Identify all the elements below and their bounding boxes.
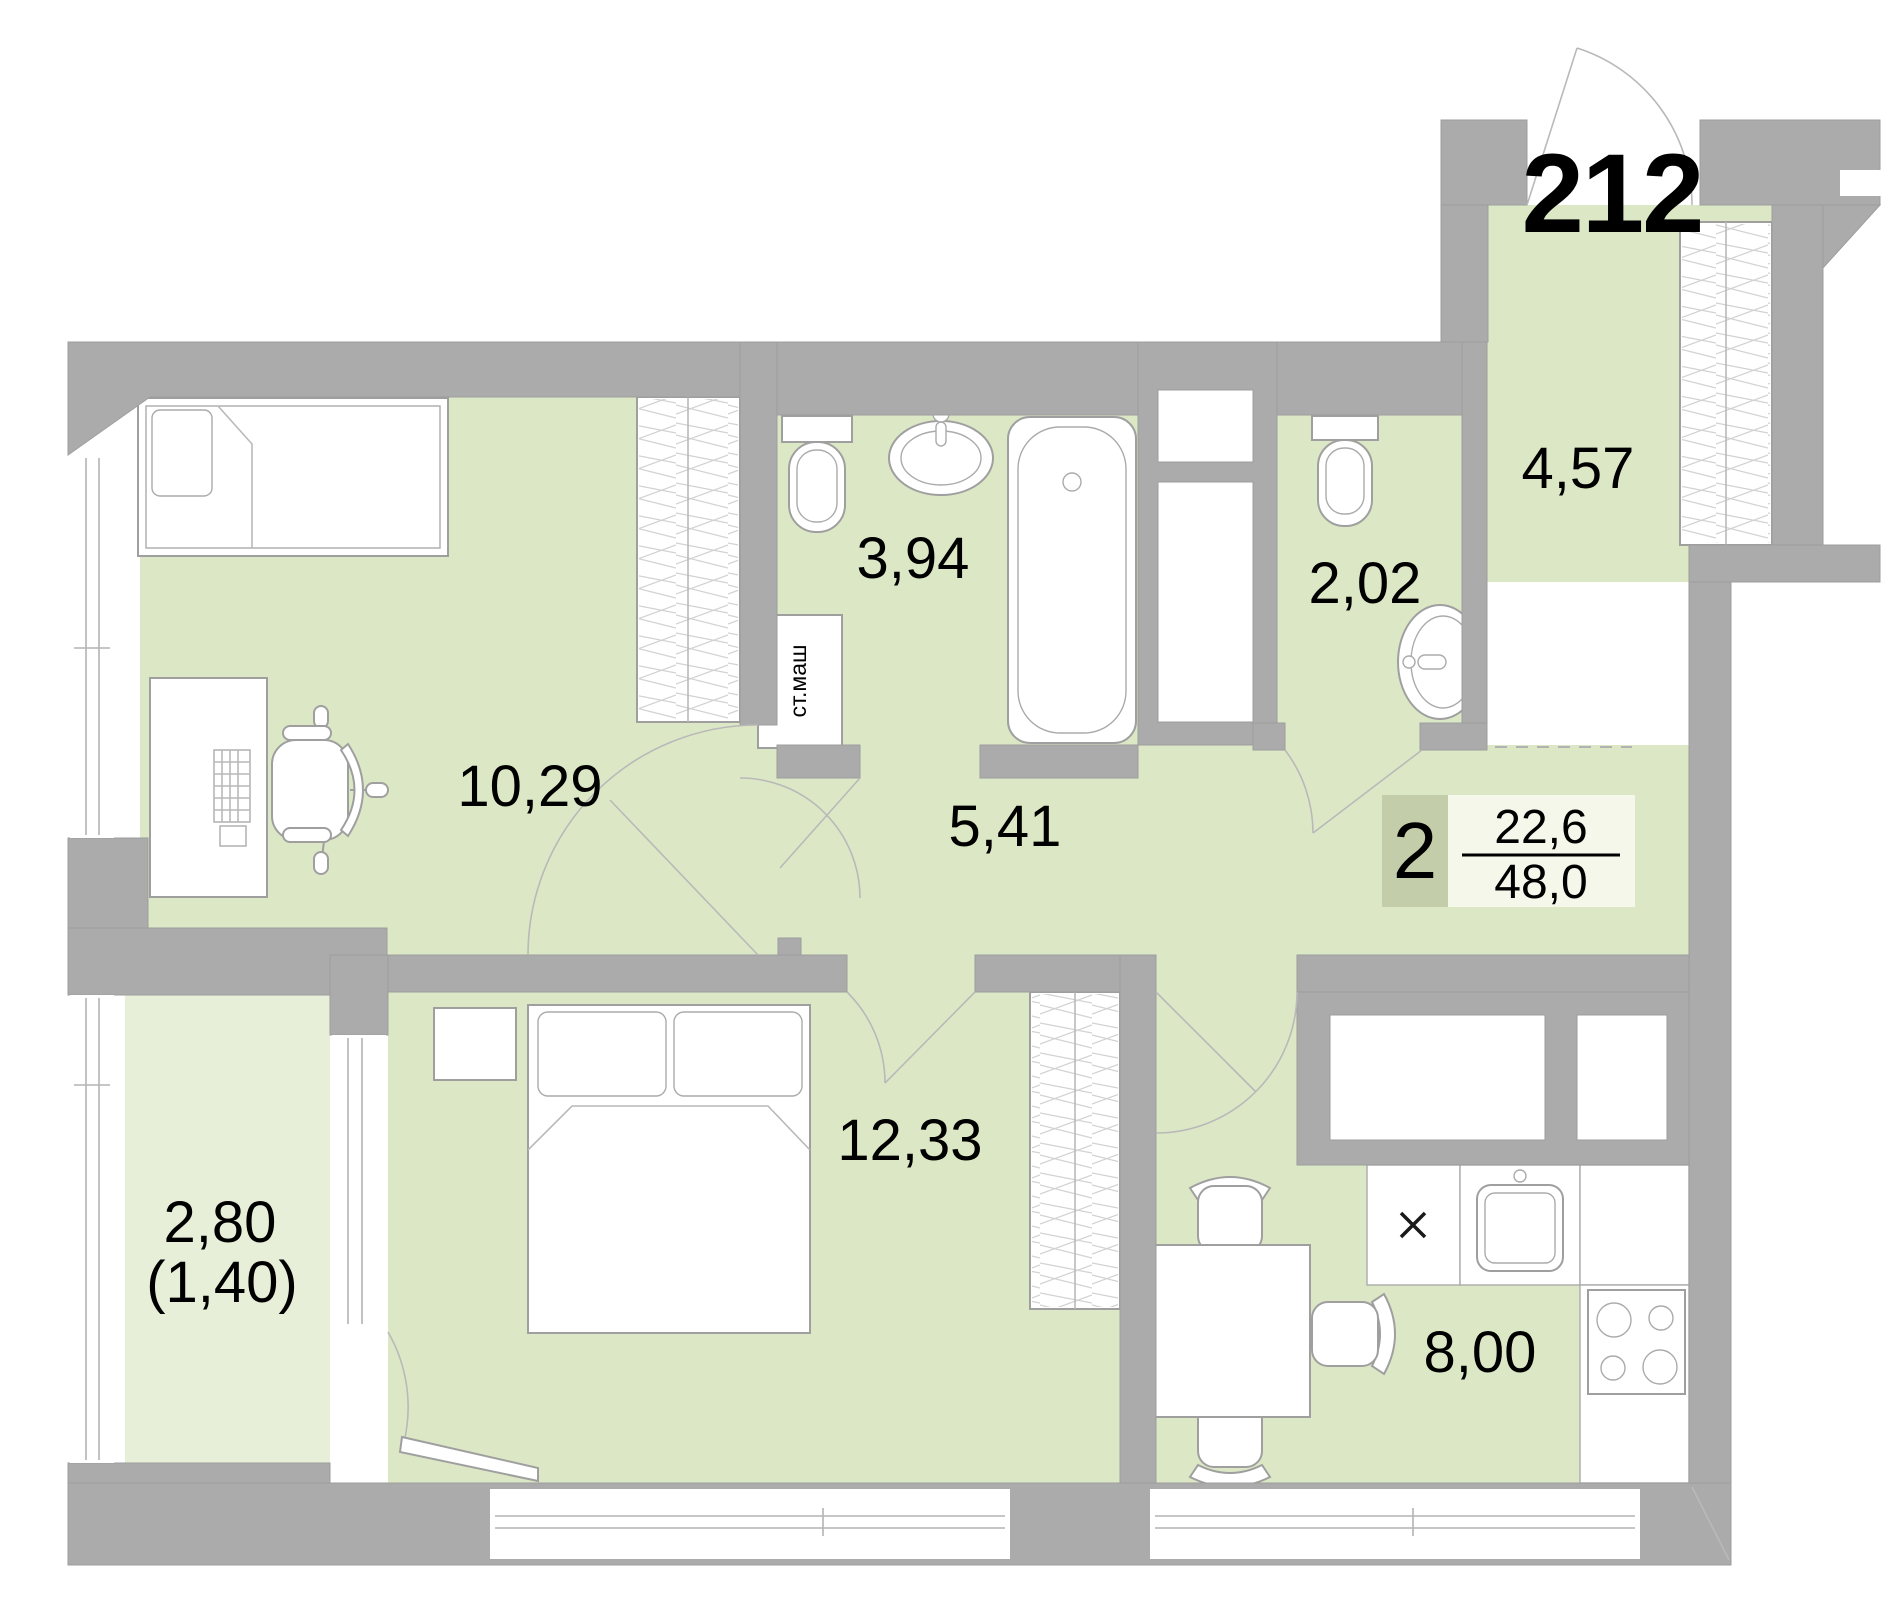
toilet-wc <box>1312 416 1378 526</box>
summary-badge: 2 22,6 48,0 <box>1382 795 1635 909</box>
bathtub <box>1008 417 1136 743</box>
balcony-coefficient-label: (1,40) <box>146 1250 298 1315</box>
badge-rooms-count: 2 <box>1393 806 1438 895</box>
wall-living-bath <box>740 342 777 725</box>
living-room-area-label: 10,29 <box>457 754 602 819</box>
single-bed <box>138 398 448 556</box>
wardrobe-living-room <box>637 397 740 722</box>
double-bed <box>528 1005 810 1333</box>
wall-wc-bottom-right <box>1420 723 1487 750</box>
kitchen-niche-1 <box>1330 1015 1545 1140</box>
stove <box>1588 1290 1685 1394</box>
wall-step-band <box>1689 545 1880 582</box>
chair-top <box>1198 1186 1262 1252</box>
wall-kitchen-top <box>1297 955 1689 992</box>
wall-balcony-corner <box>330 955 388 1035</box>
wall-entry-stem <box>1441 205 1488 342</box>
living-room-doorway-floor <box>740 725 777 955</box>
wall-top-bath-wc <box>777 342 1487 415</box>
wall-balcony-bottom <box>68 1463 330 1483</box>
wall-bedroom-top <box>386 955 847 992</box>
nightstand <box>434 1008 516 1080</box>
wall-wc-right <box>1462 342 1487 745</box>
wall-bedroom-kitchen <box>1120 955 1156 1483</box>
wall-right-step <box>1823 205 1880 268</box>
wardrobe-bedroom <box>1030 992 1120 1309</box>
desk <box>150 678 267 897</box>
window-living-room-left <box>70 455 114 838</box>
washing-machine-label: ст.маш <box>785 645 811 718</box>
window-bedroom-bottom <box>490 1489 1010 1559</box>
shaft-niche-2 <box>1158 482 1253 722</box>
window-balcony-left <box>70 995 114 1463</box>
balcony-door-opening <box>332 1327 386 1463</box>
chair-right <box>1312 1302 1378 1366</box>
wall-bath-bottom-left <box>777 745 860 778</box>
shaft-niche-1 <box>1158 390 1253 462</box>
floor-plan: ст.маш <box>0 0 1902 1600</box>
window-kitchen-bottom <box>1150 1489 1640 1559</box>
balcony-area-label: 2,80 <box>164 1190 277 1255</box>
wall-door-nub <box>778 938 801 955</box>
toilet-bathroom <box>782 416 852 532</box>
wall-wc-bottom-left <box>1253 723 1285 750</box>
bathroom-area-label: 3,94 <box>857 526 970 591</box>
wall-kitchen-right <box>1689 582 1731 1483</box>
kitchen-sink <box>1477 1170 1563 1271</box>
wall-right-upper <box>1772 205 1823 545</box>
entry-hall-area-label: 4,57 <box>1522 436 1635 501</box>
wardrobe-entry-hall <box>1680 222 1772 545</box>
balcony-partition-window <box>332 1035 386 1463</box>
floor-plan-page: ст.маш <box>0 0 1902 1600</box>
kitchen-niche-2 <box>1577 1015 1667 1140</box>
entrance-left-jamb <box>1441 120 1527 205</box>
bedroom-area-label: 12,33 <box>837 1108 982 1173</box>
wall-bath-bottom-right <box>980 745 1138 778</box>
wall-notch <box>1840 170 1902 196</box>
wc-area-label: 2,02 <box>1309 551 1422 616</box>
badge-living-area: 22,6 <box>1494 801 1587 854</box>
badge-total-area: 48,0 <box>1494 856 1587 909</box>
unit-number: 212 <box>1522 131 1703 256</box>
kitchen-area-label: 8,00 <box>1424 1320 1537 1385</box>
hallway-area-label: 5,41 <box>949 794 1062 859</box>
